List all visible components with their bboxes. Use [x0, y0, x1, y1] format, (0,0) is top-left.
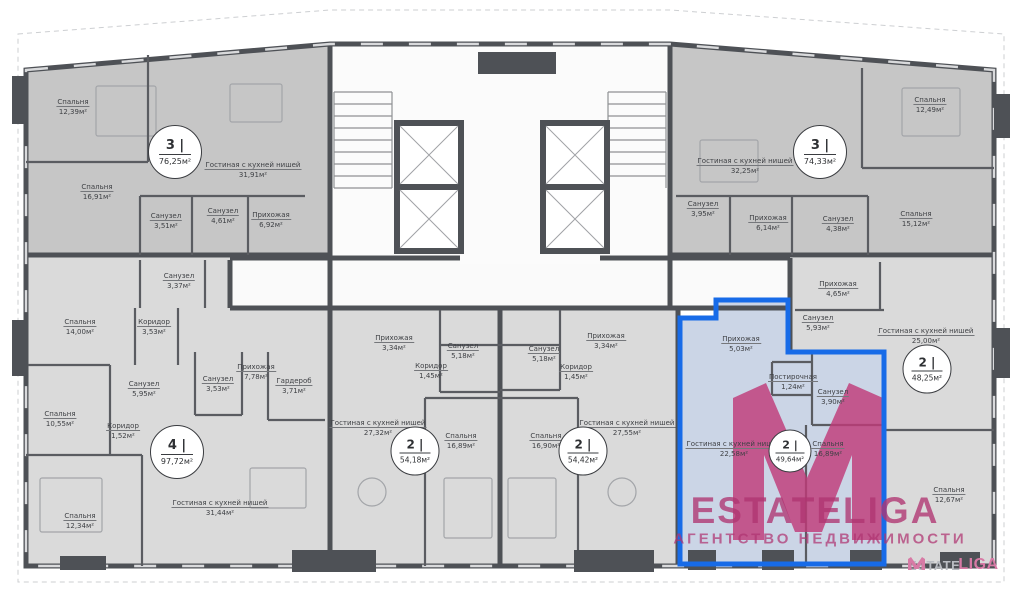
badge-apartment-left-4room: 4 |97,72м² — [150, 425, 204, 479]
watermark-subtitle: АГЕНТСТВО НЕДВИЖИМОСТИ — [673, 531, 966, 548]
badge-apartment-middle-a: 2 |54,18м² — [391, 427, 440, 476]
footer-logo-liga: LIGA — [958, 556, 998, 574]
footer-m-icon — [908, 556, 925, 570]
badge-apartment-highlighted: 2 |49,64м² — [769, 430, 812, 473]
badge-apartment-middle-b: 2 |54,42м² — [559, 427, 608, 476]
apartment-fills — [26, 44, 994, 566]
badge-apartment-top-left: 3 |76,25м² — [148, 125, 202, 179]
footer-logo: ESTATE LIGA — [908, 556, 999, 574]
badge-apartment-top-right: 3 |74,33м² — [793, 125, 847, 179]
floorplan-canvas: Спальня12,39м² Спальня16,91м² Гостиная с… — [0, 0, 1023, 590]
watermark-brand: ESTATELIGA — [691, 490, 940, 532]
badge-apartment-right: 2 |48,25м² — [903, 345, 952, 394]
